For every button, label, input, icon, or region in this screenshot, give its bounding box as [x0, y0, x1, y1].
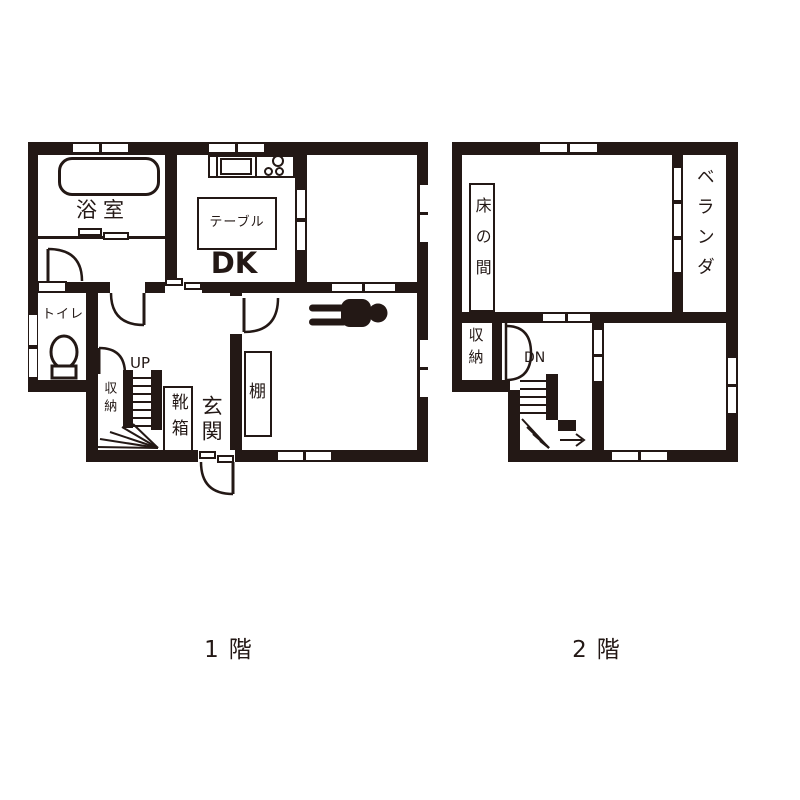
wall-segment	[165, 155, 177, 293]
window-mark	[278, 452, 303, 460]
floor2-caption: 2階	[536, 638, 666, 663]
closet-label-floor1: 収納	[101, 381, 115, 417]
stove-burner-icon	[264, 167, 273, 176]
window-mark	[73, 144, 99, 152]
stove-burner-icon	[272, 155, 284, 167]
counter-divider	[216, 156, 218, 176]
wall-segment	[123, 370, 133, 428]
sliding-opening-mark	[297, 190, 305, 218]
wall-segment	[86, 450, 428, 462]
door-gap	[110, 282, 145, 293]
window-mark	[102, 144, 128, 152]
table-label: テーブル	[198, 216, 276, 230]
sliding-opening-mark	[332, 284, 362, 291]
toilet-label: トイレ	[42, 308, 84, 322]
sleeping-person-icon	[309, 299, 388, 327]
window-mark	[641, 452, 667, 460]
sliding-opening-mark	[297, 222, 305, 250]
sliding-opening-mark	[594, 330, 602, 354]
stove-burner-icon	[275, 167, 284, 176]
sliding-opening-mark	[594, 357, 602, 381]
wall-segment	[86, 293, 98, 462]
sliding-door-panel	[78, 228, 102, 236]
window-mark	[420, 340, 428, 367]
window-mark	[420, 185, 428, 212]
window-mark	[420, 370, 428, 397]
door-arc-icon	[99, 348, 125, 374]
window-mark	[238, 144, 264, 152]
entrance-label: 玄関	[199, 395, 222, 445]
tokonoma-label: 床の間	[473, 197, 491, 290]
shelf-label: 棚	[249, 383, 266, 402]
wall-segment	[295, 155, 307, 282]
closet-wall	[492, 323, 502, 380]
entrance-door-arc-icon	[201, 462, 233, 494]
door-arc-icon	[48, 249, 82, 281]
bath-partition-line	[38, 236, 165, 239]
symbols-overlay	[0, 0, 800, 800]
window-mark	[420, 215, 428, 242]
sliding-door-panel	[165, 278, 183, 286]
counter-divider	[255, 156, 257, 176]
closet-label-floor2: 収納	[467, 327, 484, 371]
sliding-opening-mark	[543, 314, 565, 321]
window-mark	[209, 144, 235, 152]
sliding-opening-mark	[674, 204, 681, 236]
window-mark	[306, 452, 331, 460]
sliding-door-panel	[199, 451, 216, 459]
window-mark	[29, 315, 37, 345]
sliding-door-panel	[217, 455, 234, 463]
bathroom-label: 浴室	[66, 199, 140, 222]
door-arc-icon	[111, 293, 144, 325]
wall-segment	[452, 142, 462, 392]
sliding-opening-mark	[674, 168, 681, 200]
shoe-box-label: 靴箱	[168, 393, 187, 445]
arrow-head-icon	[576, 434, 584, 446]
stairs-up-label: UP	[130, 355, 150, 372]
stair-wall-stub	[558, 420, 576, 431]
window-mark	[612, 452, 638, 460]
dk-label: DK	[203, 248, 265, 280]
sliding-opening-mark	[568, 314, 590, 321]
stairs-down-label: DN	[524, 351, 545, 366]
window-mark	[29, 349, 37, 377]
sliding-opening-mark	[674, 240, 681, 272]
bathtub-icon	[58, 157, 160, 196]
sliding-door-panel	[184, 282, 202, 290]
veranda-label: ベランダ	[694, 167, 714, 287]
window-mark	[728, 358, 736, 384]
wall-segment	[452, 312, 738, 323]
door-arc-icon	[244, 298, 278, 332]
sliding-opening-mark	[365, 284, 395, 291]
floorplan-canvas: 浴室 テーブル DK トイレ UP 収納 靴箱 玄関 棚 1階 床の間 ベランダ…	[0, 0, 800, 800]
sliding-door-panel	[103, 232, 129, 240]
toilet-doorway	[37, 281, 67, 293]
stair-wall-stub	[546, 374, 558, 420]
floor1-caption: 1階	[168, 638, 298, 663]
toilet-icon	[51, 336, 77, 378]
wall-segment	[452, 380, 510, 392]
wall-segment	[151, 370, 162, 430]
window-mark	[570, 144, 597, 152]
window-mark	[728, 387, 736, 413]
wall-segment	[726, 142, 738, 462]
sink-icon	[220, 158, 252, 175]
door-gap	[230, 296, 242, 334]
window-mark	[540, 144, 567, 152]
